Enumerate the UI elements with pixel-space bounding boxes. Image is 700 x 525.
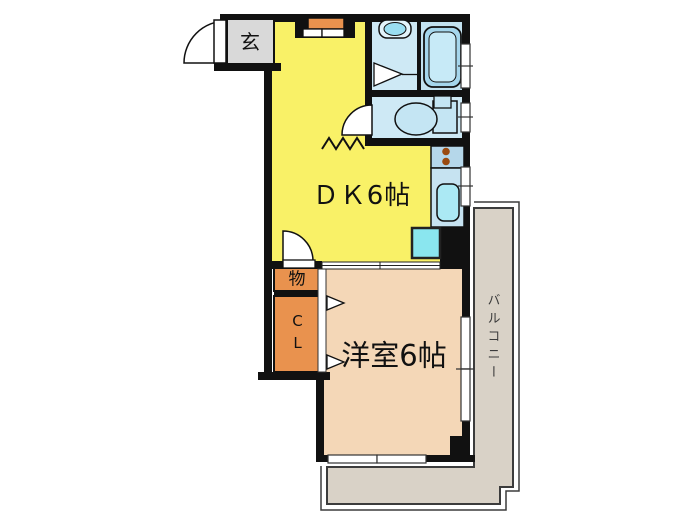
room-bottom-window-right bbox=[377, 455, 426, 463]
room-side-window-lower bbox=[461, 369, 470, 421]
stove-burner-1 bbox=[442, 148, 450, 156]
bath-divider-wall bbox=[417, 22, 421, 90]
kitchen-sink-icon bbox=[437, 184, 459, 221]
entrance-door-leaf bbox=[214, 20, 226, 63]
bath-toilet-wall bbox=[365, 90, 470, 97]
toilet-bowl-icon bbox=[395, 103, 437, 135]
cabinet-shelf-right bbox=[322, 29, 344, 37]
room-side-window-upper bbox=[461, 317, 470, 369]
lower-left-wall bbox=[316, 380, 324, 462]
room-bottom-window-left bbox=[328, 455, 377, 463]
toilet-bottom-wall bbox=[365, 138, 470, 146]
floor-plan: 玄 ＤＫ6帖 洋室6帖 物 CL バルコニー bbox=[0, 0, 700, 525]
balcony-label: バルコニー bbox=[486, 293, 499, 383]
stove-burner-2 bbox=[442, 158, 450, 166]
se-corner-block bbox=[450, 436, 470, 462]
bathtub-inner bbox=[429, 32, 456, 82]
storage-label: 物 bbox=[289, 272, 306, 289]
closet-door-strip bbox=[318, 269, 326, 372]
floor-plan-drawing bbox=[0, 0, 700, 525]
closet-bottom-wall bbox=[258, 372, 330, 380]
cabinet-top bbox=[308, 18, 344, 29]
washbasin-bowl bbox=[384, 23, 406, 36]
entrance-label: 玄 bbox=[240, 32, 260, 52]
western-room-label: 洋室6帖 bbox=[341, 342, 446, 371]
refrigerator-icon bbox=[412, 228, 440, 258]
toilet-cistern-box bbox=[434, 96, 451, 108]
cabinet-shelf-left bbox=[303, 29, 322, 37]
kitchen-corner-block bbox=[440, 227, 470, 269]
left-wall bbox=[264, 63, 272, 380]
dk-room-door-leaf bbox=[283, 260, 315, 268]
dining-kitchen-label: ＤＫ6帖 bbox=[313, 183, 412, 209]
closet-label: CL bbox=[290, 312, 305, 356]
